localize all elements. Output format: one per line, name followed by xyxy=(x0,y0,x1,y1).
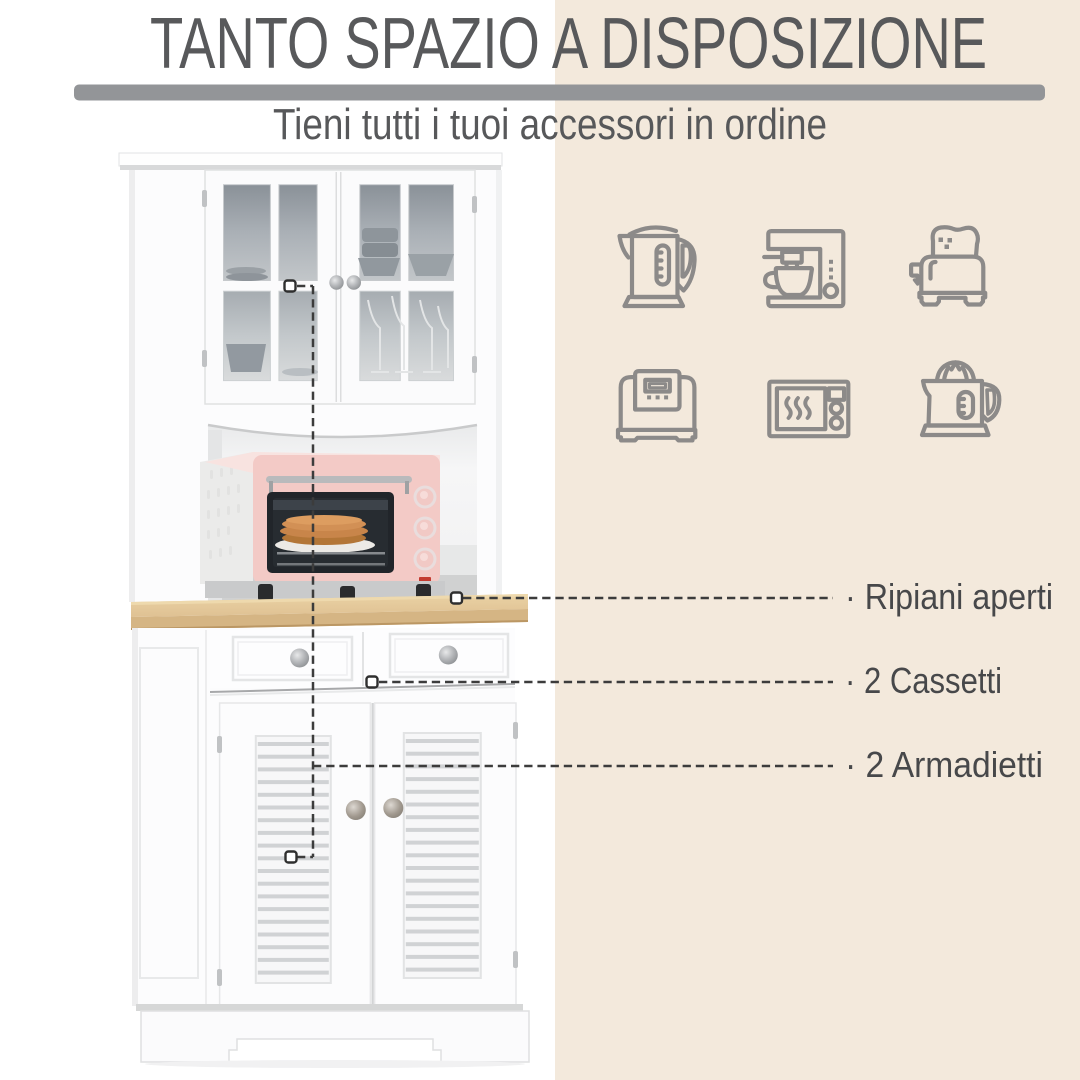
svg-text:· 2 Cassetti: · 2 Cassetti xyxy=(845,660,1002,701)
svg-text:Tieni tutti i tuoi accessori i: Tieni tutti i tuoi accessori in ordine xyxy=(273,100,827,149)
svg-text:· Ripiani aperti: · Ripiani aperti xyxy=(845,576,1053,617)
svg-text:TANTO SPAZIO A DISPOSIZIONE: TANTO SPAZIO A DISPOSIZIONE xyxy=(150,4,987,84)
svg-text:· 2 Armadietti: · 2 Armadietti xyxy=(845,744,1043,785)
